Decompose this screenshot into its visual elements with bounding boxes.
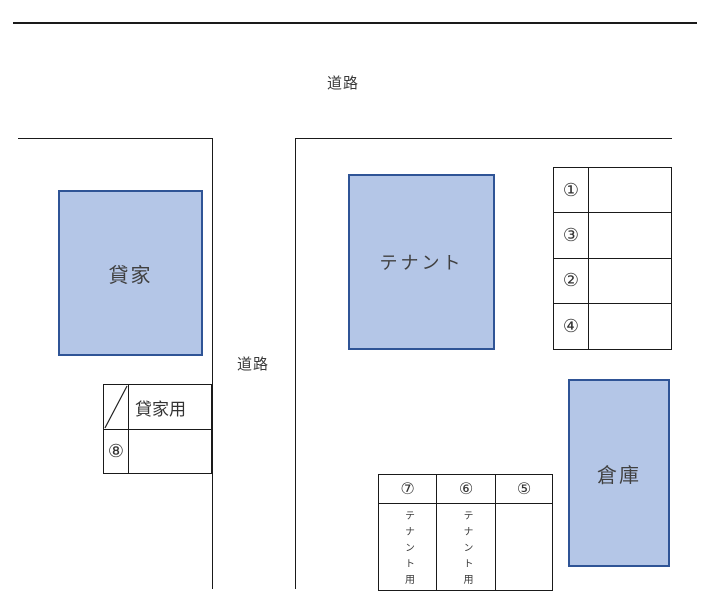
building-warehouse: 倉庫 [568, 379, 670, 567]
parking-space-2-area [589, 259, 671, 304]
parking-space-3: ③ [554, 213, 589, 258]
right-parcel-left-boundary [295, 138, 296, 589]
road-line-top [13, 22, 697, 24]
rental-parking-table: 貸家用 ⑧ [103, 384, 212, 474]
parking-space-6-use: テナント用 [437, 504, 496, 590]
rental-parking-empty-cell [129, 430, 211, 473]
parking-space-4-area [589, 304, 671, 349]
left-parcel-top-boundary [18, 138, 212, 139]
parking-space-2: ② [554, 259, 589, 304]
parking-space-7: ⑦ [379, 475, 437, 504]
building-rental-house-label: 貸家 [109, 259, 153, 288]
building-rental-house: 貸家 [58, 190, 203, 356]
numbered-parking-table: ① ③ ② ④ [553, 167, 672, 350]
right-parcel-top-boundary [295, 138, 672, 139]
parking-space-1: ① [554, 168, 589, 213]
parking-space-1-area [589, 168, 671, 213]
building-warehouse-label: 倉庫 [597, 459, 641, 488]
site-plan-canvas: 道路 道路 貸家 テナント 倉庫 貸家用 ⑧ ① ③ ② [0, 0, 707, 608]
diagonal-slash-icon [104, 385, 128, 429]
rental-parking-use-label: 貸家用 [129, 385, 211, 430]
parking-space-5-use [496, 504, 552, 590]
building-tenant-label: テナント [380, 249, 464, 275]
parking-space-6: ⑥ [437, 475, 496, 504]
road-label-top: 道路 [313, 72, 373, 93]
parking-space-7-use: テナント用 [379, 504, 437, 590]
building-tenant: テナント [348, 174, 495, 350]
left-parcel-right-boundary [212, 138, 213, 589]
parking-space-3-area [589, 213, 671, 258]
parking-space-5: ⑤ [496, 475, 552, 504]
tenant-parking-table: ⑦ ⑥ ⑤ テナント用 テナント用 [378, 474, 553, 591]
rental-parking-space-8: ⑧ [104, 430, 129, 473]
parking-space-4: ④ [554, 304, 589, 349]
road-label-middle: 道路 [227, 353, 279, 374]
rental-parking-slash-cell [104, 385, 129, 430]
